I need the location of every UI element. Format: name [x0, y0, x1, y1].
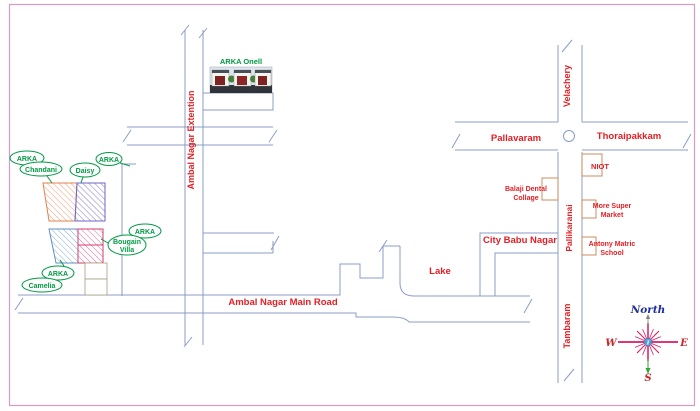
callout-tail [81, 177, 83, 183]
compass-west-label: W [605, 338, 618, 349]
label-camelia: Camelia [29, 283, 56, 290]
label-villa: Villa [120, 247, 134, 254]
label-lake: Lake [429, 266, 451, 277]
label-pallikaranai: Pallikaranai [564, 204, 574, 251]
house-door [215, 76, 225, 85]
house-door [258, 76, 267, 85]
compass-east-label: E [679, 338, 688, 349]
road-onell-branch [203, 93, 273, 110]
callout-tail [47, 176, 52, 183]
road-cross-street [127, 127, 273, 145]
label-ambal-nagar-main-road: Ambal Nagar Main Road [228, 297, 337, 308]
label-pallavaram: Pallavaram [491, 133, 541, 144]
vacant-plot-cell [85, 263, 107, 279]
label-daisy: Daisy [76, 168, 95, 175]
house-roof [234, 70, 251, 73]
label-chandani: Chandani [25, 167, 57, 174]
plot-arka-camelia [49, 229, 78, 263]
vacant-plot-cell [85, 279, 107, 295]
label-bougain: Bougain [113, 239, 141, 246]
label-arka: ARKA [135, 229, 155, 236]
road-branch-east [203, 233, 274, 253]
roundabout-icon [564, 131, 575, 142]
location-map: ARKA Chandani ARKA Daisy ARKA Bougain Vi… [0, 0, 700, 411]
house-door [237, 76, 247, 85]
house-roof [212, 70, 229, 73]
road-ambal-nagar-main-bottom [18, 313, 530, 322]
label-arka: ARKA [17, 156, 37, 163]
house-roof [255, 70, 271, 73]
compass-center-glyph: I [646, 341, 650, 347]
label-arka: ARKA [99, 157, 119, 164]
compass-rose: I North W E S [605, 304, 688, 384]
label-arka: ARKA [48, 271, 68, 278]
label-school: School [600, 250, 623, 257]
map-canvas: ARKA Chandani ARKA Daisy ARKA Bougain Vi… [0, 0, 700, 411]
label-antony-matric: Antony Matric [589, 241, 636, 248]
label-city-babu-nagar: City Babu Nagar [483, 235, 557, 246]
plot-arka-daisy [75, 183, 105, 221]
building-photo [210, 67, 272, 93]
plot-arka-bougain-villa [78, 229, 103, 263]
compass-north-label: North [630, 304, 666, 316]
label-market: Market [601, 212, 624, 219]
label-balaji-dental: Balaji Dental [505, 186, 547, 193]
plot-arka-chandani [43, 183, 77, 221]
compass-south-label: S [644, 373, 651, 384]
label-more-super: More Super [593, 203, 632, 210]
label-ambal-nagar-extension: Ambal Nagar Extention [186, 90, 196, 189]
label-thoraipakkam: Thoraipakkam [597, 131, 661, 142]
label-tambaram: Tambaram [562, 304, 572, 349]
label-collage: Collage [513, 195, 538, 202]
label-niot: NIOT [591, 162, 609, 171]
label-arka-onell: ARKA Onell [220, 57, 262, 66]
label-velachery: Velachery [562, 65, 572, 107]
